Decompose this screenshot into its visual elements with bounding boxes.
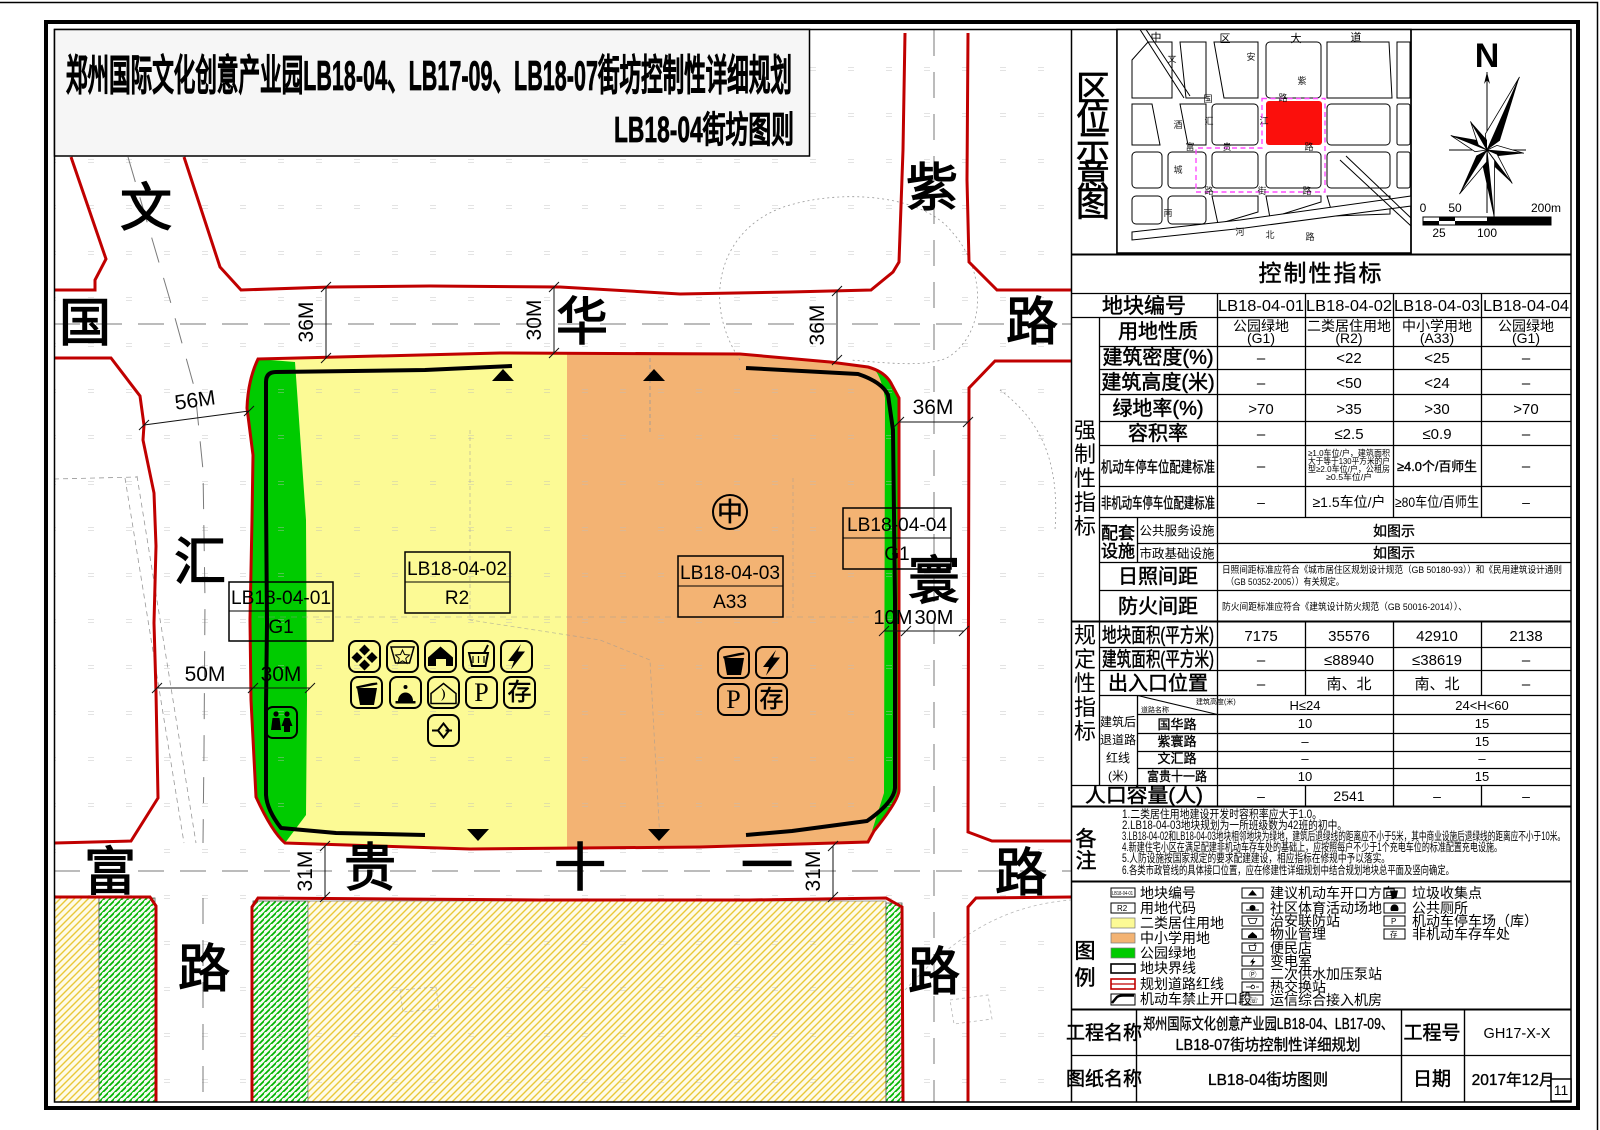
svg-text:15: 15 [1475, 734, 1489, 749]
svg-text:–: – [1301, 734, 1309, 749]
svg-text:街: 街 [1257, 185, 1266, 196]
svg-text:富贵十一路: 富贵十一路 [1147, 769, 1207, 784]
svg-text:酒: 酒 [1173, 120, 1182, 130]
svg-text:–: – [1257, 458, 1266, 475]
svg-text:–: – [1257, 652, 1266, 669]
svg-text:4.新建住宅小区在满足配建非机动车存车处的基础上，应按照每户: 4.新建住宅小区在满足配建非机动车存车处的基础上，应按照每户不少于1个充电车位的… [1122, 840, 1502, 854]
svg-text:≥80车位/百师生: ≥80车位/百师生 [1395, 494, 1479, 510]
svg-text:30M: 30M [261, 663, 302, 686]
svg-text:–: – [1522, 375, 1531, 392]
svg-text:G1: G1 [884, 544, 909, 565]
svg-text:LB18-04-03: LB18-04-03 [1394, 298, 1480, 315]
svg-text:垃圾收集点: 垃圾收集点 [1412, 885, 1482, 901]
svg-text:图纸名称: 图纸名称 [1066, 1068, 1142, 1090]
svg-text:P: P [1391, 917, 1396, 926]
svg-text:≤88940: ≤88940 [1324, 652, 1374, 669]
svg-text:50: 50 [1448, 201, 1462, 215]
svg-text:LB18-04-01: LB18-04-01 [1112, 891, 1133, 897]
svg-text:地块面积(平方米): 地块面积(平方米) [1102, 624, 1214, 647]
svg-text:36M: 36M [913, 396, 954, 419]
svg-text:路: 路 [1302, 185, 1311, 196]
svg-text:建筑高度(米): 建筑高度(米) [1101, 371, 1214, 394]
svg-text:十: 十 [554, 840, 606, 898]
svg-text:寰: 寰 [908, 553, 960, 611]
svg-text:5.人防设施按国家规定的要求配建建设，相应指标在修规中予以落: 5.人防设施按国家规定的要求配建建设，相应指标在修规中予以落实。 [1122, 851, 1390, 865]
svg-text:江: 江 [1259, 116, 1268, 126]
svg-text:图: 图 [1075, 940, 1096, 963]
svg-text:日照间距: 日照间距 [1118, 565, 1198, 588]
svg-text:地块界线: 地块界线 [1140, 960, 1196, 976]
svg-text:公园绿地: 公园绿地 [1140, 945, 1196, 961]
svg-text:城: 城 [1173, 165, 1182, 175]
svg-text:华: 华 [556, 294, 608, 352]
svg-text:一: 一 [741, 838, 793, 896]
svg-text:人口容量(人): 人口容量(人) [1085, 784, 1203, 807]
svg-text:36M: 36M [295, 302, 318, 343]
svg-text:图: 图 [1076, 186, 1110, 224]
svg-text:☏: ☏ [1249, 996, 1259, 1005]
svg-text:中小学用地: 中小学用地 [1140, 930, 1210, 946]
svg-text:标: 标 [1074, 514, 1096, 539]
svg-text:（GB 50352-2005））有关规定。: （GB 50352-2005））有关规定。 [1226, 576, 1344, 588]
svg-text:富: 富 [84, 844, 136, 902]
svg-text:<24: <24 [1424, 375, 1449, 392]
svg-text:15: 15 [1475, 716, 1489, 731]
svg-text:>70: >70 [1513, 401, 1538, 418]
svg-text:存: 存 [508, 679, 532, 706]
svg-text:如图示: 如图示 [1373, 545, 1415, 561]
svg-text:LB18-04街坊图则: LB18-04街坊图则 [614, 109, 794, 150]
svg-text:国华路: 国华路 [1157, 717, 1196, 732]
svg-text:运信综合接入机房: 运信综合接入机房 [1270, 992, 1382, 1008]
svg-text:≥1.5车位/户: ≥1.5车位/户 [1312, 494, 1385, 510]
svg-text:路: 路 [1305, 231, 1314, 242]
svg-text:36M: 36M [806, 305, 829, 346]
svg-text:10: 10 [1298, 716, 1312, 731]
svg-text:设施: 设施 [1101, 542, 1135, 561]
svg-text:LB18-04-04: LB18-04-04 [1483, 298, 1569, 315]
svg-text:30M: 30M [523, 300, 546, 341]
svg-text:紫: 紫 [1297, 76, 1306, 86]
svg-text:安: 安 [1246, 51, 1255, 62]
svg-text:性: 性 [1074, 671, 1096, 696]
svg-text:11: 11 [1554, 1082, 1569, 1098]
svg-text:用地代码: 用地代码 [1140, 900, 1196, 916]
svg-text:LB18-04-02: LB18-04-02 [1306, 298, 1392, 315]
svg-text:LB18-04-01: LB18-04-01 [231, 588, 331, 609]
svg-text:国: 国 [59, 295, 111, 353]
svg-text:大: 大 [1291, 31, 1302, 45]
svg-text:–: – [1257, 494, 1265, 510]
svg-text:路: 路 [1006, 294, 1058, 352]
svg-text:路: 路 [1304, 141, 1313, 152]
svg-text:路: 路 [1204, 185, 1213, 196]
svg-text:文: 文 [120, 180, 172, 238]
svg-text:–: – [1522, 788, 1530, 804]
svg-text:–: – [1433, 788, 1441, 804]
svg-text:日照间距标准应符合《城市居住区规划设计规范（GB 50180: 日照间距标准应符合《城市居住区规划设计规范（GB 50180-93））和《民用建… [1222, 564, 1562, 576]
svg-text:P: P [726, 685, 740, 714]
svg-text:路: 路 [995, 845, 1047, 903]
svg-text:Ⓟ: Ⓟ [1249, 970, 1257, 979]
svg-text:工程名称: 工程名称 [1066, 1022, 1142, 1044]
svg-text:北: 北 [1265, 230, 1274, 240]
svg-text:日期: 日期 [1413, 1068, 1451, 1090]
svg-text:紫寰路: 紫寰路 [1157, 734, 1196, 749]
svg-text:50M: 50M [185, 663, 226, 686]
svg-text:工程号: 工程号 [1403, 1022, 1460, 1044]
svg-text:汇: 汇 [1204, 116, 1213, 126]
svg-text:–: – [1522, 458, 1531, 475]
svg-text:非机动车停车位配建标准: 非机动车停车位配建标准 [1101, 495, 1215, 512]
svg-text:指: 指 [1074, 490, 1096, 515]
svg-text:紫: 紫 [906, 160, 958, 218]
svg-text:(G1): (G1) [1247, 330, 1275, 346]
svg-text:容积率: 容积率 [1128, 422, 1188, 445]
svg-text:中: 中 [1151, 31, 1162, 44]
svg-text:LB18-04街坊图则: LB18-04街坊图则 [1208, 1071, 1328, 1089]
svg-text:2541: 2541 [1333, 788, 1364, 804]
svg-text:南: 南 [1163, 207, 1172, 218]
svg-text:郑州国际文化创意产业园LB18-04、LB17-09、LB1: 郑州国际文化创意产业园LB18-04、LB17-09、LB18-07街坊控制性详… [66, 52, 792, 99]
svg-text:出入口位置: 出入口位置 [1108, 672, 1208, 695]
svg-text:机动车停车位配建标准: 机动车停车位配建标准 [1101, 459, 1215, 476]
svg-text:道路名称: 道路名称 [1141, 705, 1169, 714]
svg-text:10: 10 [1298, 769, 1312, 784]
svg-text:15: 15 [1475, 769, 1489, 784]
svg-text:–: – [1257, 676, 1266, 693]
svg-text:–: – [1257, 788, 1265, 804]
svg-text:–: – [1522, 652, 1531, 669]
svg-text:–: – [1522, 426, 1531, 443]
svg-text:200m: 200m [1531, 201, 1561, 215]
svg-text:建议机动车开口方向: 建议机动车开口方向 [1270, 885, 1396, 901]
svg-text:GH17-X-X: GH17-X-X [1484, 1026, 1551, 1042]
svg-text:>30: >30 [1424, 401, 1449, 418]
svg-text:≥0.5车位/户: ≥0.5车位/户 [1326, 472, 1372, 482]
svg-text:建筑面积(平方米): 建筑面积(平方米) [1102, 648, 1214, 671]
svg-text:A33: A33 [713, 592, 747, 613]
svg-text:–: – [1478, 751, 1486, 766]
svg-text:(R2): (R2) [1335, 330, 1362, 346]
svg-text:区: 区 [1220, 33, 1231, 45]
svg-text:规划道路红线: 规划道路红线 [1140, 976, 1224, 992]
svg-text:存: 存 [1390, 929, 1398, 939]
svg-text:25: 25 [1432, 226, 1446, 240]
svg-text:公共服务设施: 公共服务设施 [1139, 523, 1215, 538]
svg-text:LB18-07街坊控制性详细规划: LB18-07街坊控制性详细规划 [1176, 1036, 1361, 1054]
svg-text:地块编号: 地块编号 [1140, 885, 1196, 901]
svg-text:6.各类市政管线的具体接口位置，应在修建性详细规划中结合规划: 6.各类市政管线的具体接口位置，应在修建性详细规划中结合规划地块总平面及竖向确定… [1122, 863, 1454, 877]
svg-text:规: 规 [1074, 623, 1096, 648]
svg-text:郑州国际文化创意产业园LB18-04、LB17-09、: 郑州国际文化创意产业园LB18-04、LB17-09、 [1143, 1014, 1393, 1033]
svg-text:贵: 贵 [344, 840, 396, 898]
svg-text:2.LB18-04-03地块规划为一所班级数为42班的初中。: 2.LB18-04-03地块规划为一所班级数为42班的初中。 [1122, 818, 1347, 832]
svg-text:24<H<60: 24<H<60 [1455, 698, 1509, 713]
svg-text:如图示: 如图示 [1373, 523, 1415, 539]
svg-text:二类居住用地: 二类居住用地 [1140, 915, 1224, 931]
svg-text:31M: 31M [802, 851, 825, 892]
svg-text:–: – [1257, 426, 1266, 443]
svg-text:R2: R2 [1117, 904, 1128, 913]
svg-text:<25: <25 [1424, 350, 1449, 367]
svg-text:2017年12月: 2017年12月 [1472, 1071, 1555, 1089]
svg-text:注: 注 [1076, 850, 1097, 873]
svg-text:道: 道 [1351, 30, 1362, 44]
svg-text:国: 国 [1203, 94, 1212, 104]
svg-text:强: 强 [1074, 418, 1096, 443]
svg-text:南、北: 南、北 [1326, 676, 1371, 693]
svg-text:10M: 10M [874, 607, 913, 629]
svg-text:控制性指标: 控制性指标 [1259, 260, 1384, 286]
svg-text:LB18-04-04: LB18-04-04 [847, 515, 947, 536]
svg-text:–: – [1522, 676, 1531, 693]
svg-text:建筑高度(米): 建筑高度(米) [1196, 697, 1236, 706]
svg-text:–: – [1257, 350, 1266, 367]
svg-text:存: 存 [760, 686, 784, 713]
svg-text:标: 标 [1074, 719, 1096, 744]
svg-text:42910: 42910 [1416, 628, 1458, 645]
svg-text:H≤24: H≤24 [1290, 698, 1321, 713]
svg-text:文汇路: 文汇路 [1157, 751, 1196, 766]
svg-text:路: 路 [178, 941, 230, 999]
svg-text:建筑密度(%): 建筑密度(%) [1102, 346, 1213, 369]
svg-text:LB18-04-03: LB18-04-03 [680, 563, 780, 584]
svg-text:(A33): (A33) [1420, 330, 1454, 346]
svg-text:河: 河 [1235, 226, 1244, 237]
svg-text:<50: <50 [1336, 375, 1361, 392]
svg-text:汇: 汇 [174, 534, 226, 592]
svg-text:用地性质: 用地性质 [1118, 320, 1198, 343]
svg-text:≤0.9: ≤0.9 [1422, 426, 1451, 443]
svg-text:–: – [1301, 751, 1309, 766]
svg-text:防火间距: 防火间距 [1118, 595, 1198, 618]
svg-text:各: 各 [1076, 828, 1097, 851]
svg-text:市政基础设施: 市政基础设施 [1139, 546, 1215, 561]
svg-text:非机动车存车处: 非机动车存车处 [1412, 926, 1510, 942]
svg-text:35576: 35576 [1328, 628, 1370, 645]
svg-text:0: 0 [1420, 201, 1427, 215]
svg-text:–: – [1257, 375, 1266, 392]
svg-text:绿地率(%): 绿地率(%) [1112, 397, 1203, 420]
svg-text:–: – [1522, 494, 1530, 510]
svg-text:≤2.5: ≤2.5 [1334, 426, 1363, 443]
svg-text:≥4.0个/百师生: ≥4.0个/百师生 [1397, 459, 1477, 474]
svg-text:1.二类居住用地建设开发时容积率应大于1.0。: 1.二类居住用地建设开发时容积率应大于1.0。 [1122, 807, 1322, 821]
svg-text:N: N [1475, 37, 1500, 75]
svg-text:>35: >35 [1336, 401, 1361, 418]
svg-text:路: 路 [1278, 92, 1287, 103]
svg-text:7175: 7175 [1244, 628, 1277, 645]
svg-text:LB18-04-01: LB18-04-01 [1218, 298, 1304, 315]
svg-text:地块编号: 地块编号 [1102, 295, 1186, 318]
svg-text:制: 制 [1074, 442, 1096, 467]
svg-text:LB18-04-02: LB18-04-02 [407, 559, 507, 580]
svg-text:贵: 贵 [1222, 141, 1231, 152]
svg-text:红线: 红线 [1106, 750, 1130, 765]
svg-text:(米): (米) [1108, 769, 1128, 783]
svg-text:定: 定 [1074, 647, 1096, 672]
svg-text:防火间距标准应符合《建筑设计防火规范（GB 50016-20: 防火间距标准应符合《建筑设计防火规范（GB 50016-2014））、 [1222, 601, 1467, 613]
svg-text:建筑后: 建筑后 [1100, 714, 1136, 729]
svg-text:≤38619: ≤38619 [1412, 652, 1462, 669]
svg-text:机动车禁止开口段: 机动车禁止开口段 [1140, 991, 1252, 1007]
svg-text:(G1): (G1) [1512, 330, 1540, 346]
svg-text:路: 路 [908, 944, 960, 1002]
svg-text:R2: R2 [445, 588, 469, 609]
svg-text:2138: 2138 [1509, 628, 1542, 645]
svg-text:G1: G1 [268, 617, 293, 638]
svg-text:性: 性 [1074, 466, 1096, 491]
svg-text:中: 中 [717, 497, 743, 527]
svg-text:南、北: 南、北 [1414, 676, 1459, 693]
svg-text:3.LB18-04-02和LB18-04-03地块相邻地块为: 3.LB18-04-02和LB18-04-03地块相邻地块为绿地，建筑后退绿线的… [1122, 829, 1565, 843]
svg-text:P: P [474, 678, 488, 707]
svg-text:例: 例 [1075, 967, 1096, 990]
svg-text:退道路: 退道路 [1100, 732, 1136, 747]
svg-text:>70: >70 [1248, 401, 1273, 418]
svg-text:31M: 31M [294, 851, 317, 892]
svg-text:–: – [1522, 350, 1531, 367]
svg-text:文: 文 [1167, 53, 1176, 64]
svg-text:富: 富 [1185, 141, 1194, 152]
svg-text:100: 100 [1477, 226, 1497, 240]
svg-text:<22: <22 [1336, 350, 1361, 367]
svg-text:指: 指 [1074, 695, 1096, 720]
svg-text:配套: 配套 [1101, 524, 1135, 543]
